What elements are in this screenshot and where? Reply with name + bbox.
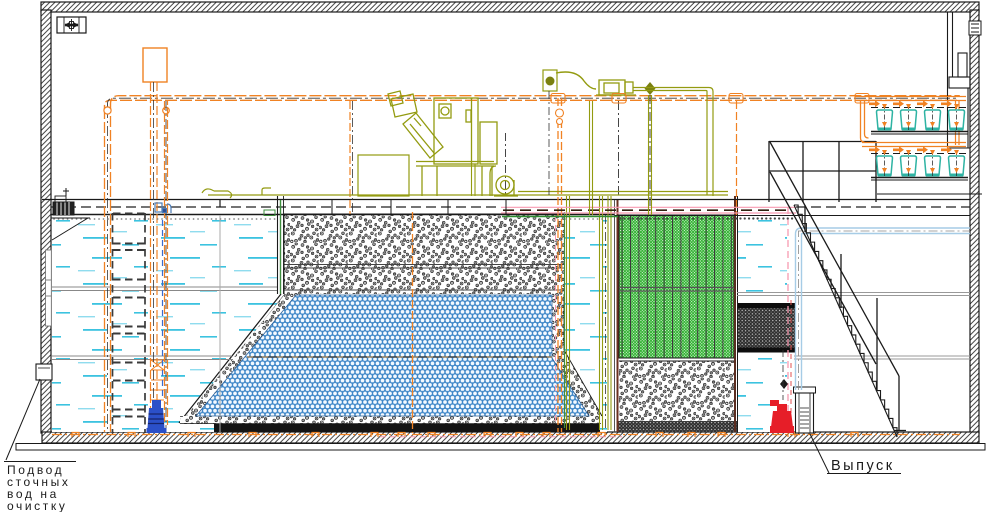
svg-text:Выпуск: Выпуск <box>831 458 895 474</box>
svg-text:очистку: очистку <box>7 499 67 512</box>
